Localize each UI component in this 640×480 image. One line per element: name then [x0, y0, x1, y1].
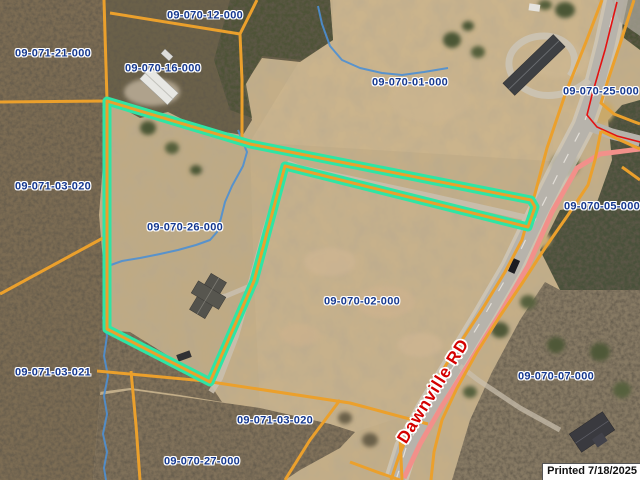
printed-date-badge: Printed 7/18/2025 [542, 463, 640, 480]
gis-map-canvas[interactable]: 09-070-12-00009-071-21-00009-070-16-0000… [0, 0, 640, 480]
aerial-map-layers [0, 0, 640, 480]
aerial-background [0, 0, 640, 480]
